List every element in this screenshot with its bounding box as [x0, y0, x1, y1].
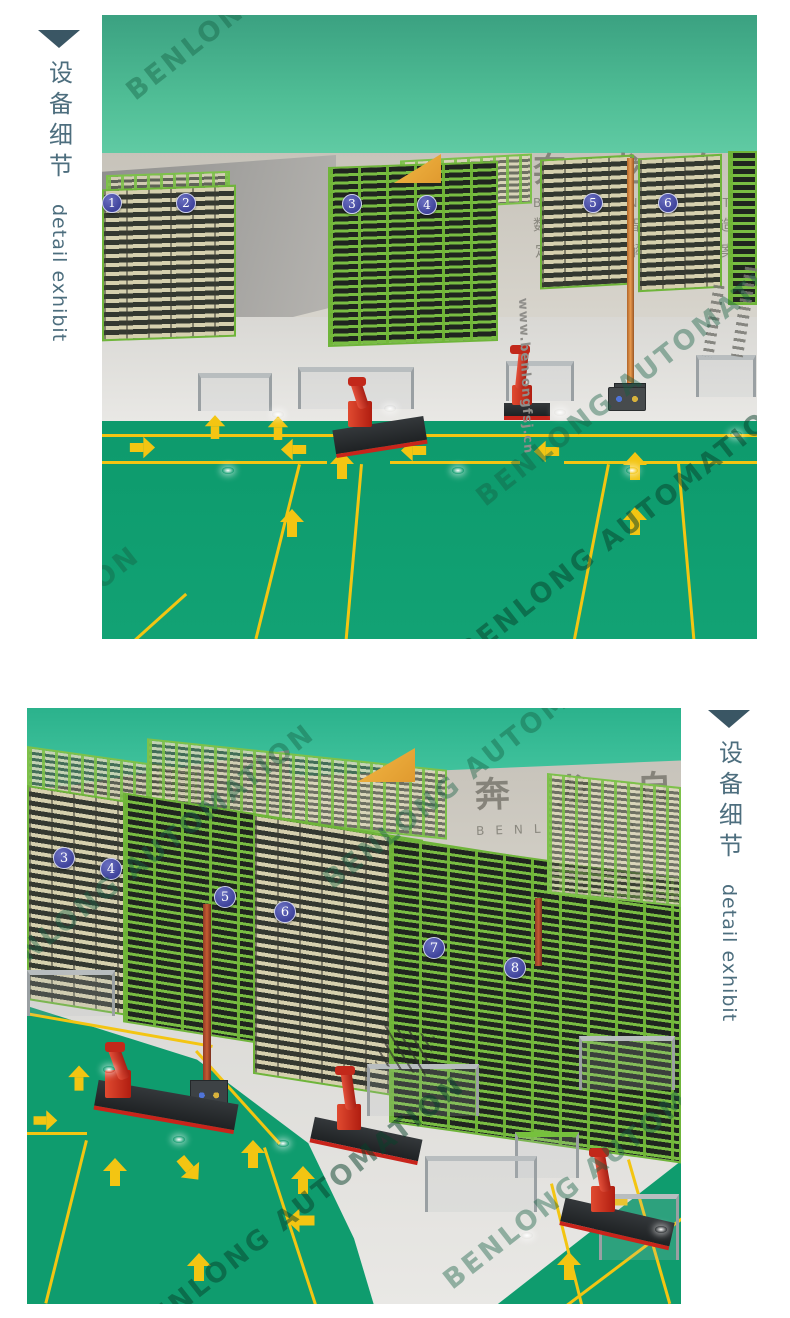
robot-arm: [87, 1048, 247, 1138]
lane-arrow-left-icon: [281, 439, 307, 461]
stacker-crane-mast: [535, 898, 542, 966]
detail-image-bottom: 奔龙自动化 BENLONG AUTOMATION: [27, 708, 681, 1304]
rack-number-badge: 2: [176, 193, 196, 213]
conveyor-table: [198, 373, 272, 411]
floor-light: [222, 467, 234, 474]
section-title-chinese: 设备细节: [42, 60, 77, 184]
rack-number-badge: 5: [583, 193, 603, 213]
pallet-rack: [328, 161, 498, 347]
robot-wrist: [335, 1066, 355, 1075]
rack-number-badge: 3: [53, 847, 75, 869]
pallet-rack: [102, 185, 236, 342]
conveyor-table: [27, 970, 115, 1016]
lane-arrow-up-icon: [103, 1158, 127, 1187]
floor-light: [173, 1136, 185, 1143]
lane-line: [27, 1132, 87, 1135]
lane-line: [102, 461, 327, 464]
conveyor-table: [579, 1036, 675, 1090]
lane-arrow-right-icon: [129, 437, 155, 459]
triangle-down-icon: [38, 30, 80, 48]
section-title-top: 设备细节 detail exhibit: [36, 30, 82, 342]
conveyor-table: [425, 1156, 537, 1212]
rack-number-badge: 3: [342, 194, 362, 214]
floor-light: [452, 467, 464, 474]
detail-image-top: 奔龙自动化 BENLONG AUTOMATION 数字化智能制造 定制化解决方案: [102, 15, 757, 639]
rack-number-badge: 1: [102, 193, 122, 213]
lane-arrow-up-icon: [557, 1252, 581, 1281]
pallet-rack: [547, 773, 681, 907]
lane-arrow-right-icon: [33, 1110, 58, 1130]
rack-number-badge: 8: [504, 957, 526, 979]
lane-arrow-up-icon: [268, 416, 288, 441]
lane-arrow-up-icon: [205, 415, 225, 440]
section-title-english: detail exhibit: [718, 884, 740, 1022]
triangle-down-icon: [708, 710, 750, 728]
floor-light: [626, 467, 638, 474]
section-title-english: detail exhibit: [48, 204, 70, 342]
rack-number-badge: 6: [658, 193, 678, 213]
pallet-rack: [540, 155, 634, 290]
section-title-bottom: 设备细节 detail exhibit: [706, 710, 752, 1022]
floor-light: [103, 1066, 115, 1073]
floor-light: [384, 405, 396, 412]
rack-number-badge: 6: [274, 901, 296, 923]
floor-light: [655, 1226, 667, 1233]
pallet-rack: [638, 154, 722, 292]
lane-arrow-up-icon: [280, 509, 304, 538]
robot-arm: [334, 377, 434, 461]
conveyor-table: [696, 355, 756, 397]
rack-number-badge: 5: [214, 886, 236, 908]
rack-number-badge: 4: [417, 195, 437, 215]
robot-rail: [332, 416, 427, 458]
rack-number-badge: 7: [423, 937, 445, 959]
robot-rail: [559, 1198, 674, 1250]
floor-light: [277, 1140, 289, 1147]
robot-wrist: [348, 377, 366, 386]
floor-light: [272, 411, 284, 418]
lane-arrow-up-icon: [241, 1140, 265, 1169]
stacker-crane-mast: [627, 158, 634, 390]
section-title-chinese: 设备细节: [712, 740, 747, 864]
robot-wrist: [105, 1042, 125, 1052]
